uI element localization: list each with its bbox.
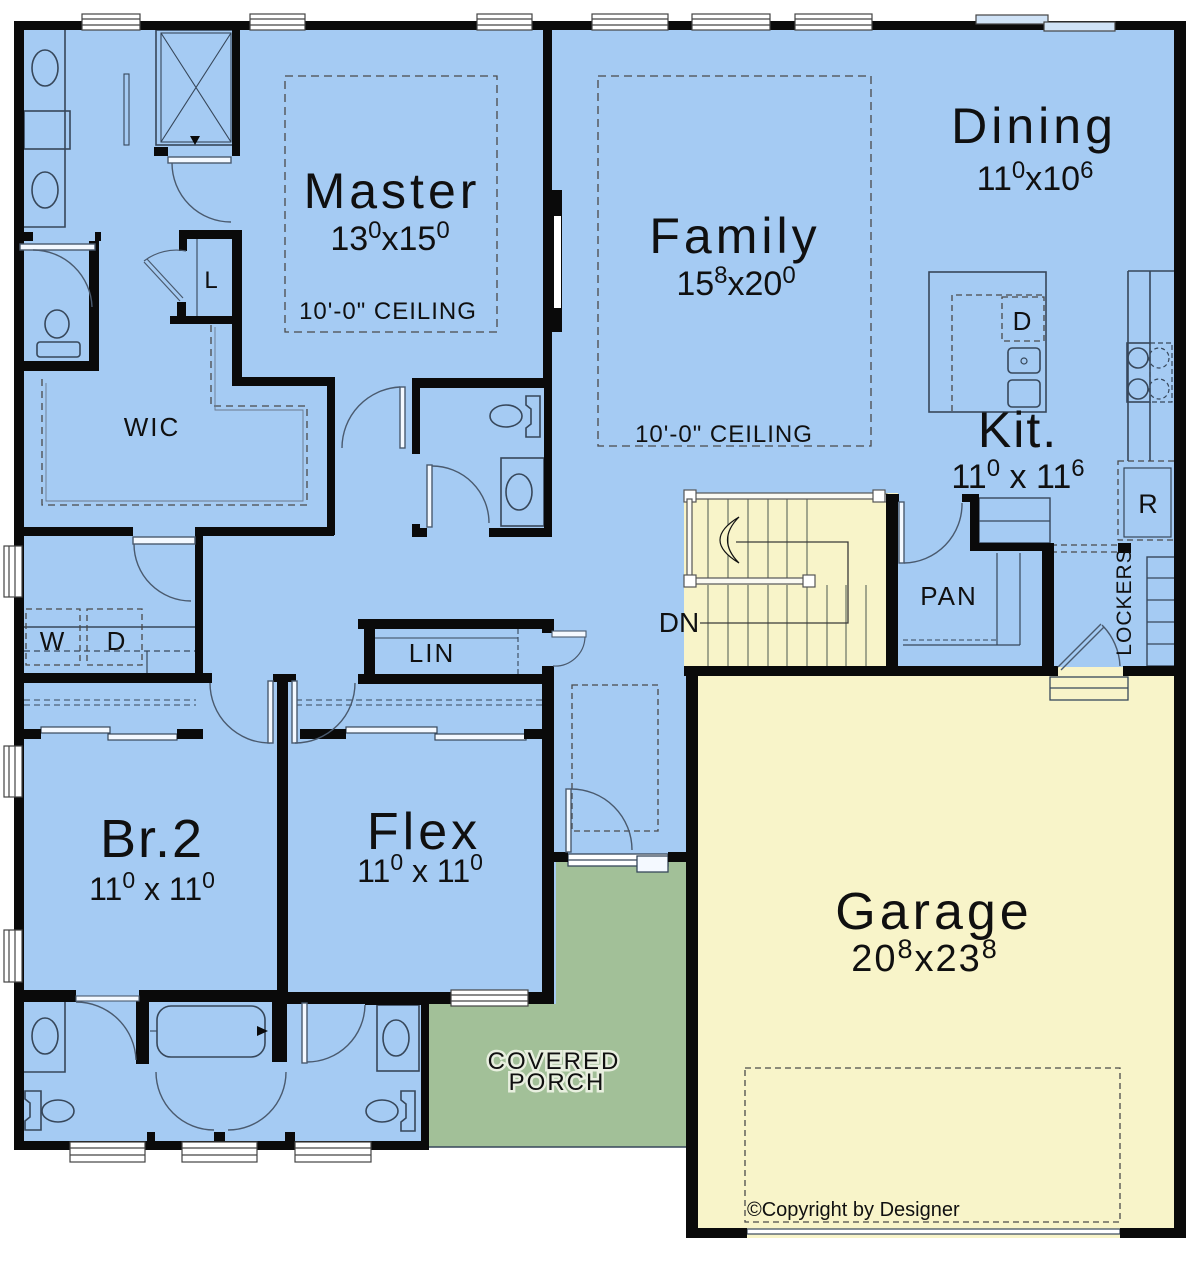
svg-text:Family: Family xyxy=(649,208,820,264)
svg-text:©Copyright by Designer: ©Copyright by Designer xyxy=(747,1199,960,1221)
svg-text:LOCKERS: LOCKERS xyxy=(1113,548,1136,655)
svg-text:D: D xyxy=(1013,306,1032,336)
svg-text:158x200: 158x200 xyxy=(676,262,795,303)
svg-text:PORCH: PORCH xyxy=(509,1069,606,1096)
svg-text:110 x 116: 110 x 116 xyxy=(951,455,1084,496)
svg-text:Garage: Garage xyxy=(835,883,1032,941)
svg-text:130x150: 130x150 xyxy=(330,217,449,258)
svg-text:LIN: LIN xyxy=(409,638,455,668)
svg-text:Master: Master xyxy=(304,163,481,219)
svg-text:10'-0" CEILING: 10'-0" CEILING xyxy=(635,421,813,448)
svg-text:R: R xyxy=(1138,489,1158,519)
svg-text:10'-0" CEILING: 10'-0" CEILING xyxy=(299,298,477,325)
svg-text:PAN: PAN xyxy=(920,581,978,611)
svg-text:W: W xyxy=(40,626,65,656)
svg-text:DN: DN xyxy=(659,607,699,638)
svg-text:Br.2: Br.2 xyxy=(100,809,204,869)
svg-text:WIC: WIC xyxy=(124,412,181,442)
svg-text:110x106: 110x106 xyxy=(977,157,1094,198)
svg-text:Kit.: Kit. xyxy=(978,402,1058,458)
svg-text:110 x 110: 110 x 110 xyxy=(357,849,483,889)
svg-text:110 x 110: 110 x 110 xyxy=(89,867,215,907)
svg-text:Dining: Dining xyxy=(951,98,1117,154)
svg-text:L: L xyxy=(204,267,217,294)
svg-text:208x238: 208x238 xyxy=(851,934,999,980)
svg-text:D: D xyxy=(107,626,126,656)
